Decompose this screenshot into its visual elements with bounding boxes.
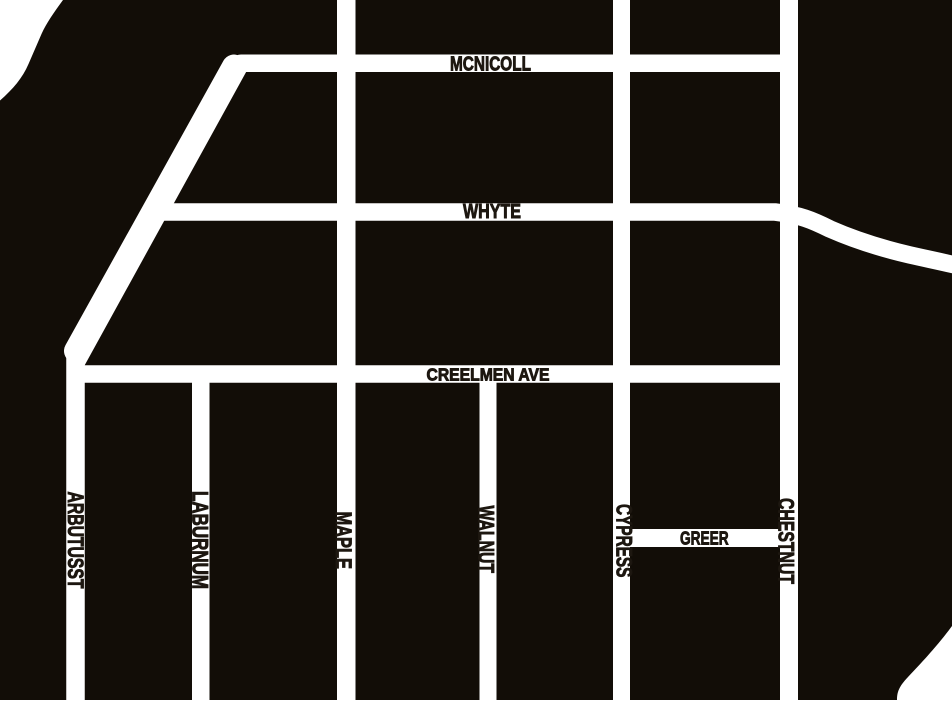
- svg-text:WHYTE: WHYTE: [463, 201, 521, 223]
- svg-text:GREER: GREER: [680, 527, 729, 548]
- svg-text:CREELMEN AVE: CREELMEN AVE: [427, 365, 550, 385]
- svg-text:WALNUT: WALNUT: [474, 506, 499, 574]
- svg-text:MCNICOLL: MCNICOLL: [450, 54, 531, 76]
- svg-text:LABURNUM: LABURNUM: [188, 491, 213, 589]
- svg-text:CHESTNUT: CHESTNUT: [774, 498, 799, 584]
- svg-text:CYPRESS: CYPRESS: [612, 504, 637, 577]
- svg-text:MAPLE: MAPLE: [331, 512, 356, 570]
- svg-text:ARBUTUSST: ARBUTUSST: [63, 492, 88, 589]
